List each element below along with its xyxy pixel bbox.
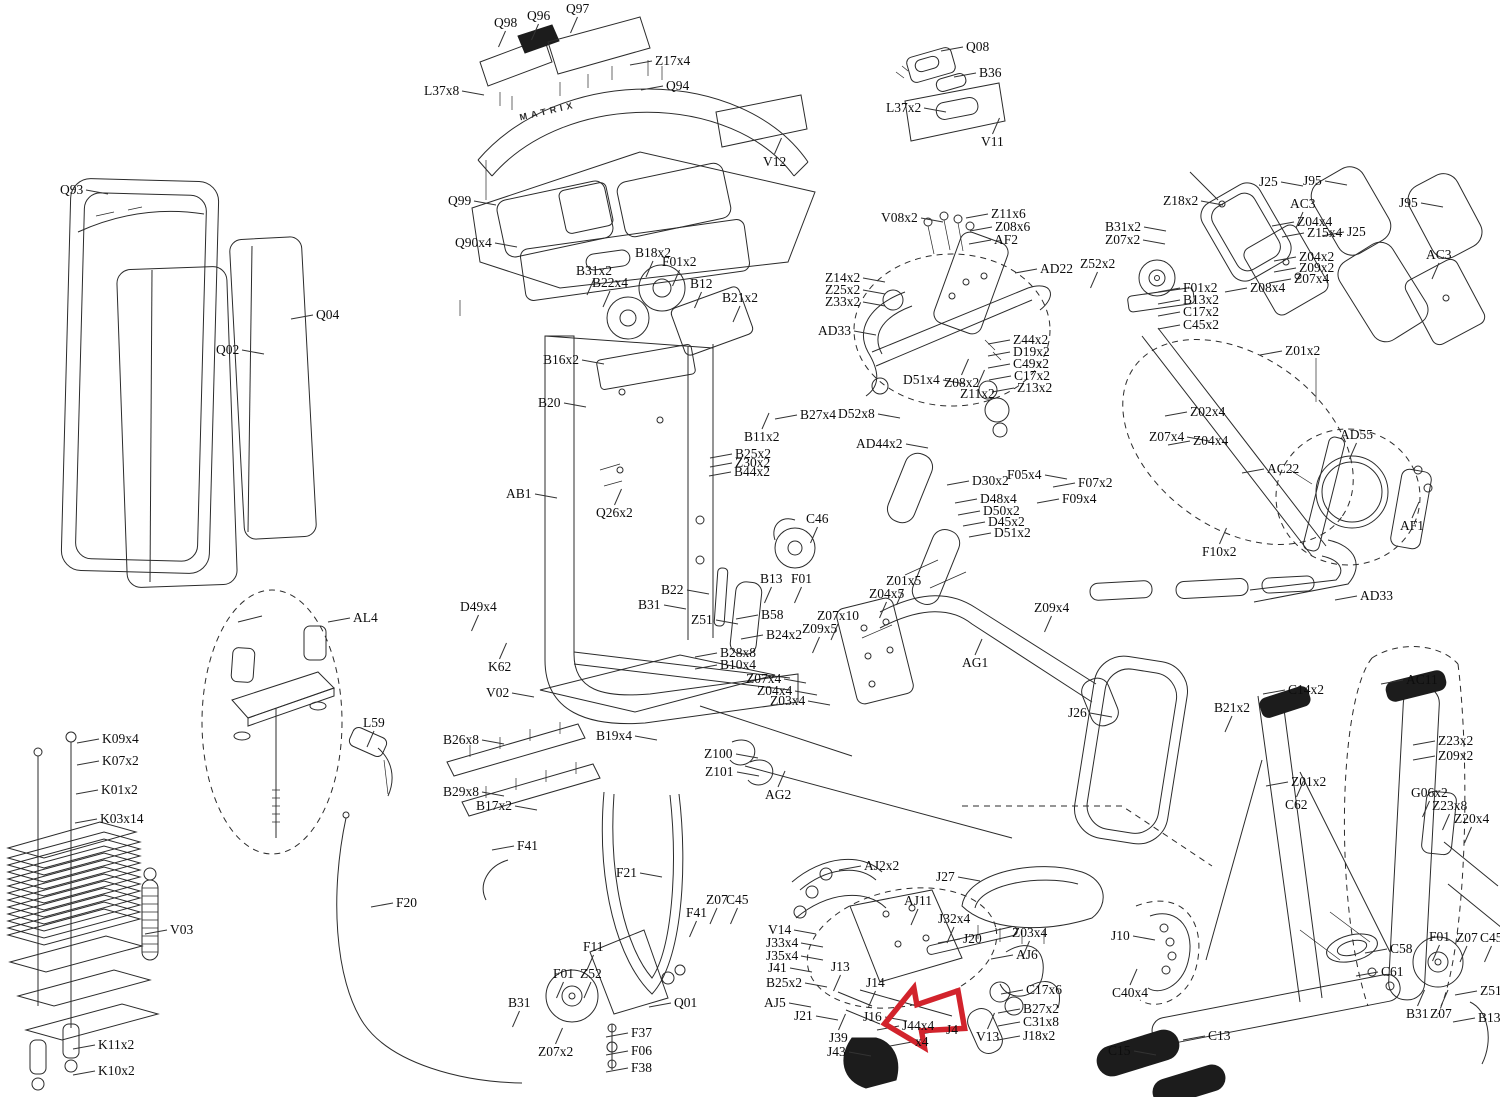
part-label: B27x4	[800, 408, 836, 422]
part-label: B26x8	[443, 733, 479, 747]
part-label: AF1	[1400, 519, 1424, 533]
part-label: J44x4	[902, 1019, 934, 1033]
part-label: C31x8	[1023, 1015, 1059, 1029]
part-label: F41	[517, 839, 538, 853]
part-label: AD22	[1040, 262, 1073, 276]
part-label: C17x6	[1026, 983, 1062, 997]
part-label: Q26x2	[596, 506, 633, 520]
part-label: J25	[1259, 175, 1278, 189]
part-label: Q99	[448, 194, 471, 208]
part-label: B16x2	[543, 353, 579, 367]
part-label: AG1	[962, 656, 988, 670]
part-label: K03x14	[100, 812, 144, 826]
part-label: B17x2	[476, 799, 512, 813]
part-label: C13	[1208, 1029, 1231, 1043]
part-label: Q98	[494, 16, 517, 30]
part-label: Z11x2	[960, 387, 995, 401]
part-label: Q08	[966, 40, 989, 54]
part-label: B13	[760, 572, 783, 586]
part-label: V08x2	[881, 211, 918, 225]
part-label: AJ11	[904, 894, 932, 908]
part-label: C15	[1108, 1044, 1131, 1058]
part-label: V03	[170, 923, 193, 937]
part-label: F41	[686, 906, 707, 920]
part-label: Z07	[1430, 1007, 1452, 1021]
part-label: C45	[726, 893, 749, 907]
part-label: K11x2	[98, 1038, 134, 1052]
part-label: Z07	[706, 893, 728, 907]
part-label: Q97	[566, 2, 589, 16]
part-label: J18x2	[1023, 1029, 1055, 1043]
part-label: F01	[553, 967, 574, 981]
part-label: J4	[946, 1023, 958, 1037]
part-label: Z08x4	[1250, 281, 1285, 295]
part-label: K10x2	[98, 1064, 135, 1078]
part-label: Z101	[705, 765, 734, 779]
part-label: Z01x2	[1291, 775, 1326, 789]
part-label: C45	[1480, 931, 1500, 945]
part-label: B21x2	[722, 291, 758, 305]
part-label: AC3	[1426, 248, 1452, 262]
part-label: B11x2	[744, 430, 780, 444]
part-label: K01x2	[101, 783, 138, 797]
part-label: Z07x4	[1294, 272, 1329, 286]
part-label: B25x2	[766, 976, 802, 990]
part-label: F09x4	[1062, 492, 1097, 506]
part-label: AD44x2	[856, 437, 903, 451]
part-label: L37x8	[424, 84, 459, 98]
part-label: C61	[1381, 965, 1404, 979]
part-label: C62	[1285, 798, 1308, 812]
part-label: AF2	[994, 233, 1018, 247]
part-label: J20	[963, 932, 982, 946]
part-label: J21	[794, 1009, 813, 1023]
part-label: B29x8	[443, 785, 479, 799]
part-label: K09x4	[102, 732, 139, 746]
part-label: V12	[763, 155, 786, 169]
part-label: Q01	[674, 996, 697, 1010]
part-label: C14x2	[1288, 683, 1324, 697]
part-label: J25	[1347, 225, 1366, 239]
part-label: F05x4	[1007, 468, 1042, 482]
part-label: F01	[1429, 930, 1450, 944]
part-label: K07x2	[102, 754, 139, 768]
part-label: x4	[915, 1035, 929, 1049]
part-label: B36	[979, 66, 1002, 80]
part-label: B10x4	[720, 658, 756, 672]
part-label-layer: Q98Q96Q97Z17x4L37x8Q94Q99Q90x4Q08B36L37x…	[0, 0, 1500, 1097]
part-label: J41	[768, 961, 787, 975]
part-label: AJ6	[1016, 948, 1038, 962]
part-label: C40x4	[1112, 986, 1148, 1000]
part-label: Z52	[580, 967, 602, 981]
part-label: J95	[1399, 196, 1418, 210]
part-label: AD33	[1360, 589, 1393, 603]
part-label: Z01x2	[1285, 344, 1320, 358]
part-label: B31	[638, 598, 661, 612]
part-label: J26	[1068, 706, 1087, 720]
part-label: Q04	[316, 308, 339, 322]
part-label: Z02x4	[1190, 405, 1225, 419]
part-label: C46	[806, 512, 829, 526]
part-label: B31	[508, 996, 531, 1010]
part-label: Z07x2	[538, 1045, 573, 1059]
part-label: K62	[488, 660, 511, 674]
part-label: C45x2	[1183, 318, 1219, 332]
part-label: D30x2	[972, 474, 1009, 488]
part-label: J16	[863, 1010, 882, 1024]
part-label: AG2	[765, 788, 791, 802]
part-label: L37x2	[886, 101, 921, 115]
part-label: B19x4	[596, 729, 632, 743]
part-label: F20	[396, 896, 417, 910]
part-label: Z07x2	[1105, 233, 1140, 247]
part-label: Z51	[1480, 984, 1500, 998]
part-label: B24x2	[766, 628, 802, 642]
part-label: Q90x4	[455, 236, 492, 250]
part-label: Z13x2	[1017, 381, 1052, 395]
part-label: Z100	[704, 747, 733, 761]
part-label: Z33x2	[825, 295, 860, 309]
part-label: J32x4	[938, 912, 970, 926]
part-label: F11	[583, 940, 604, 954]
part-label: B31	[1406, 1007, 1429, 1021]
part-label: J27	[936, 870, 955, 884]
part-label: J39	[829, 1031, 848, 1045]
part-label: F07x2	[1078, 476, 1113, 490]
diagram-page: MATRIX Q98Q96Q97Z17x4L37x8Q94Q99Q90x4Q08…	[0, 0, 1500, 1097]
part-label: B20	[538, 396, 561, 410]
part-label: AD33	[818, 324, 851, 338]
part-label: Z20x4	[1454, 812, 1489, 826]
part-label: AJ2x2	[864, 859, 899, 873]
part-label: B21x2	[1214, 701, 1250, 715]
part-label: D51x4	[903, 373, 940, 387]
part-label: Z51	[691, 613, 713, 627]
part-label: Z04x4	[1193, 434, 1228, 448]
part-label: AC11	[1406, 673, 1438, 687]
part-label: Q02	[216, 343, 239, 357]
part-label: F21	[616, 866, 637, 880]
part-label: Z09x5	[802, 622, 837, 636]
part-label: D51x2	[994, 526, 1031, 540]
part-label: Q96	[527, 9, 550, 23]
part-label: AL4	[353, 611, 378, 625]
part-label: B22	[661, 583, 684, 597]
part-label: F01	[791, 572, 812, 586]
part-label: Q93	[60, 183, 83, 197]
part-label: Z15x4	[1307, 226, 1342, 240]
part-label: D49x4	[460, 600, 497, 614]
part-label: L59	[363, 716, 385, 730]
part-label: Z03x4	[1012, 926, 1047, 940]
part-label: AB1	[506, 487, 532, 501]
part-label: Z07	[1456, 931, 1478, 945]
part-label: AC3	[1290, 197, 1316, 211]
part-label: J14	[866, 976, 885, 990]
part-label: V13	[976, 1030, 999, 1044]
part-label: F01x2	[662, 255, 697, 269]
part-label: J43	[827, 1045, 846, 1059]
part-label: AC22	[1267, 462, 1299, 476]
part-label: F06	[631, 1044, 652, 1058]
part-label: F10x2	[1202, 545, 1237, 559]
part-label: B22x4	[592, 276, 628, 290]
part-label: Z09x2	[1438, 749, 1473, 763]
part-label: Z23x2	[1438, 734, 1473, 748]
part-label: Z03x4	[770, 694, 805, 708]
part-label: B13	[1478, 1011, 1500, 1025]
part-label: J95	[1303, 174, 1322, 188]
part-label: Z17x4	[655, 54, 690, 68]
part-label: V11	[981, 135, 1004, 149]
part-label: AD55	[1340, 428, 1373, 442]
part-label: Z07x4	[1149, 430, 1184, 444]
part-label: Q94	[666, 79, 689, 93]
part-label: Z18x2	[1163, 194, 1198, 208]
part-label: AJ5	[764, 996, 786, 1010]
part-label: Z04x5	[869, 587, 904, 601]
part-label: Z09x4	[1034, 601, 1069, 615]
part-label: B44x2	[734, 465, 770, 479]
part-label: F38	[631, 1061, 652, 1075]
part-label: F37	[631, 1026, 652, 1040]
part-label: B12	[690, 277, 713, 291]
part-label: B58	[761, 608, 784, 622]
part-label: J13	[831, 960, 850, 974]
part-label: J10	[1111, 929, 1130, 943]
part-label: V02	[486, 686, 509, 700]
part-label: D52x8	[838, 407, 875, 421]
part-label: Z52x2	[1080, 257, 1115, 271]
part-label: C58	[1390, 942, 1413, 956]
